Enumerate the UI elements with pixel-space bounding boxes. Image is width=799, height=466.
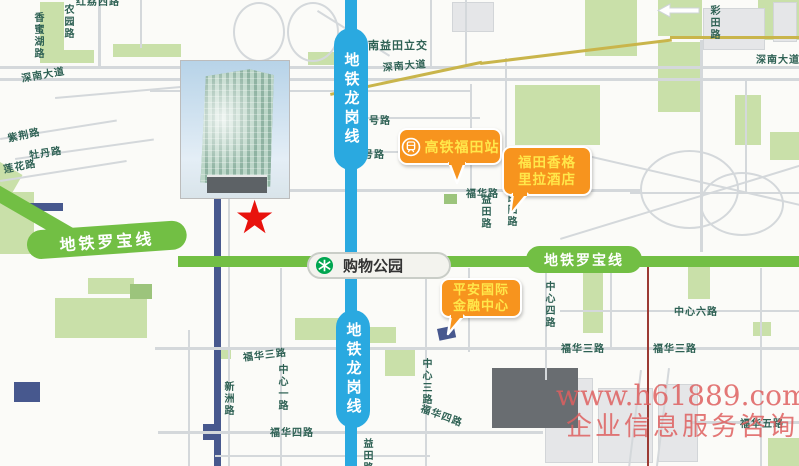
- station-name: 购物公园: [343, 255, 403, 276]
- park-area: [658, 42, 702, 112]
- navy-block: [14, 382, 40, 402]
- road-label: 香蜜湖路: [30, 12, 45, 60]
- park-area: [368, 327, 396, 343]
- callout-label: 高铁福田站: [425, 137, 500, 157]
- callout-label: 福田香格 里拉酒店: [518, 154, 576, 188]
- interchange-loop: [233, 2, 285, 62]
- road-label: 中心六路: [674, 303, 718, 318]
- road-label: 中心四路: [541, 281, 556, 329]
- road-line: [188, 330, 190, 466]
- map-canvas: 深南大道 深南益田立交 深南大道 深南大道 彩田路 农园路 香蜜湖路 紫荆路 牡…: [0, 0, 799, 466]
- park-area: [295, 318, 341, 340]
- park-area: [770, 132, 799, 160]
- road-label: 益田路: [477, 194, 492, 230]
- navy-block: [214, 195, 221, 466]
- road-label: 益田路: [359, 438, 374, 466]
- road-label: 深南大道: [756, 51, 799, 66]
- callout-futian-rail-station: 高铁福田站: [398, 128, 502, 165]
- park-area: [444, 194, 457, 204]
- park-area: [88, 278, 134, 294]
- arrow-left-icon: [657, 3, 701, 23]
- railway-line: [670, 36, 799, 39]
- road-label: 红荔西路: [76, 0, 120, 8]
- road-label: 新洲路: [220, 381, 235, 417]
- interchange-loop: [287, 2, 339, 62]
- park-area: [688, 263, 710, 299]
- road-label: 农园路: [60, 4, 75, 40]
- railway-line: [480, 38, 672, 64]
- building-block: [452, 2, 494, 32]
- road-line: [215, 455, 430, 457]
- road-label: 福华四路: [270, 424, 314, 439]
- road-line: [140, 0, 142, 48]
- park-area: [385, 350, 415, 376]
- road-label: 中心一路: [274, 364, 289, 412]
- tower-highlight: [198, 69, 274, 187]
- road-line: [465, 0, 467, 66]
- callout-pingan-ifc: 平安国际 金融中心: [440, 278, 522, 318]
- road-label: 福华三路: [561, 340, 605, 355]
- park-area: [753, 322, 771, 336]
- road-line: [610, 268, 612, 348]
- road-label: 紫荆路: [6, 123, 41, 145]
- park-area: [583, 263, 603, 333]
- road-line: [228, 195, 230, 466]
- callout-shangri-la-hotel: 福田香格 里拉酒店: [502, 146, 592, 196]
- road-label: 彩田路: [706, 5, 721, 41]
- road-line: [430, 0, 432, 66]
- road-label: 中心三路: [418, 358, 433, 406]
- station-shopping-park: 购物公园: [307, 252, 451, 279]
- location-star-marker: ★: [234, 194, 275, 240]
- road-line: [98, 0, 101, 68]
- park-area: [130, 284, 152, 299]
- park-area: [55, 298, 147, 338]
- metro-luobao-line-segment: [178, 256, 799, 267]
- callout-label: 平安国际 金融中心: [453, 282, 509, 314]
- road-label: 福华三路: [653, 340, 697, 355]
- park-area: [113, 44, 181, 57]
- metro-longgang-label-top: 地铁龙岗线: [334, 28, 368, 170]
- metro-longgang-label-bottom: 地铁龙岗线: [336, 310, 370, 428]
- train-icon: [401, 137, 421, 157]
- metro-luobao-label-right: 地铁罗宝线: [526, 246, 642, 273]
- watermark-text: 企业信息服务咨询: [566, 406, 798, 443]
- road-label: 莲花路: [2, 155, 37, 176]
- interchange-loop: [700, 172, 784, 236]
- building-photo: [180, 60, 290, 199]
- park-area: [735, 95, 761, 145]
- park-area: [515, 85, 600, 145]
- road-label: 深南大道: [382, 55, 427, 74]
- shenzhen-metro-logo-icon: [315, 256, 334, 275]
- park-area: [40, 50, 94, 63]
